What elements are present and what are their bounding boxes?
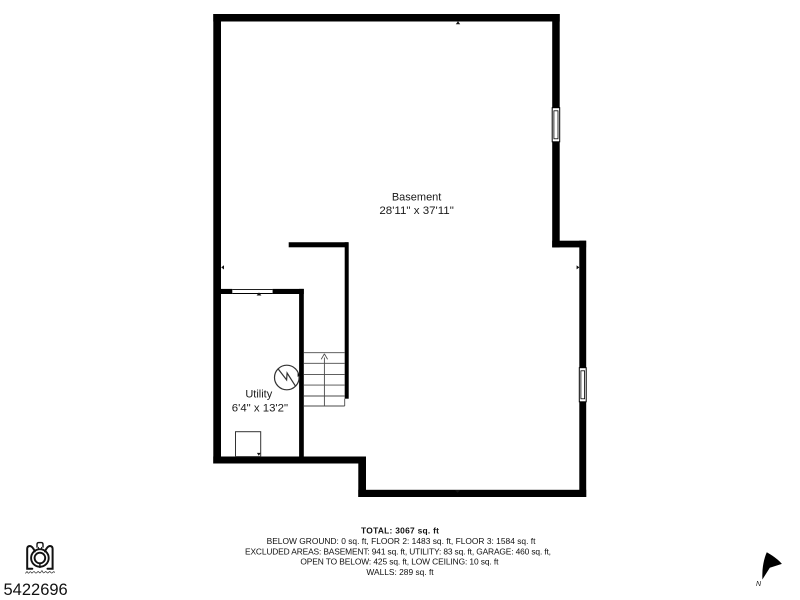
svg-text:Basement: Basement (392, 191, 442, 203)
svg-text:BELOW GROUND: 0 sq. ft, FLOOR: BELOW GROUND: 0 sq. ft, FLOOR 2: 1483 sq… (267, 536, 536, 546)
svg-text:Utility: Utility (245, 388, 272, 400)
svg-text:5422696: 5422696 (4, 581, 68, 599)
svg-text:TOTAL: 3067 sq. ft: TOTAL: 3067 sq. ft (361, 526, 439, 536)
svg-text:EXCLUDED AREAS: BASEMENT: 941: EXCLUDED AREAS: BASEMENT: 941 sq. ft, UT… (245, 546, 551, 556)
svg-text:28'11" x 37'11": 28'11" x 37'11" (379, 205, 454, 217)
svg-text:N: N (756, 581, 762, 588)
svg-text:WALLS: 289 sq. ft: WALLS: 289 sq. ft (366, 567, 434, 577)
svg-text:OPEN TO BELOW: 425 sq. ft, LOW: OPEN TO BELOW: 425 sq. ft, LOW CEILING: … (300, 557, 499, 567)
svg-text:6'4" x 13'2": 6'4" x 13'2" (232, 402, 288, 414)
